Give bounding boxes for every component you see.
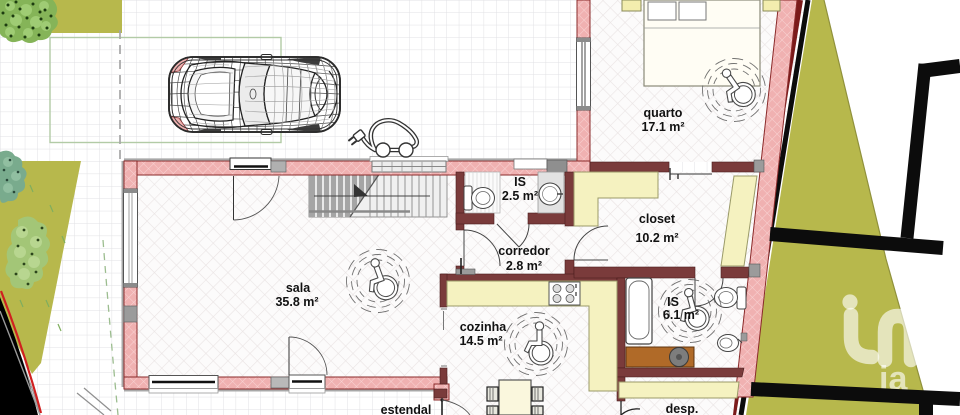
svg-text:10.2 m²: 10.2 m² (635, 231, 678, 245)
svg-text:cozinha: cozinha (460, 320, 508, 334)
svg-text:IS: IS (514, 175, 526, 189)
svg-text:quarto: quarto (644, 106, 683, 120)
svg-text:desp.: desp. (666, 402, 699, 415)
svg-text:IS: IS (667, 295, 679, 309)
svg-text:35.8 m²: 35.8 m² (275, 295, 318, 309)
svg-text:17.1 m²: 17.1 m² (641, 120, 684, 134)
svg-text:2.8 m²: 2.8 m² (506, 259, 542, 273)
svg-text:6.1 m²: 6.1 m² (663, 308, 699, 322)
svg-text:closet: closet (639, 212, 676, 226)
svg-text:corredor: corredor (498, 244, 550, 258)
svg-text:estendal: estendal (381, 403, 432, 415)
svg-text:14.5 m²: 14.5 m² (459, 334, 502, 348)
svg-text:sala: sala (286, 281, 311, 295)
svg-text:2.5 m²: 2.5 m² (502, 189, 538, 203)
